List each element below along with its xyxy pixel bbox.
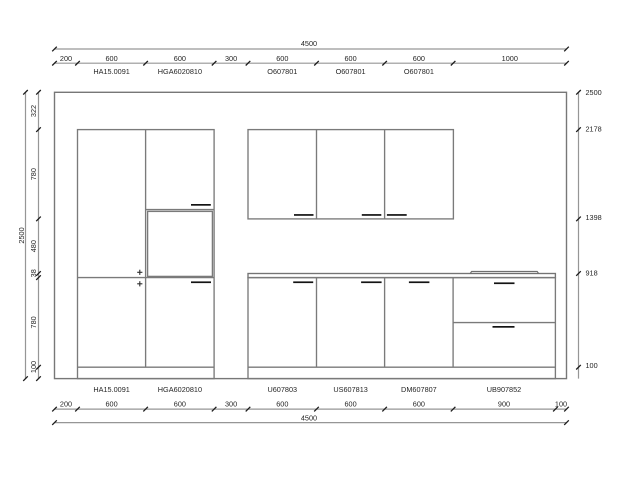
- svg-text:322: 322: [29, 105, 38, 117]
- svg-text:2500: 2500: [17, 227, 26, 243]
- svg-text:600: 600: [276, 54, 288, 63]
- svg-text:300: 300: [225, 399, 237, 408]
- svg-text:O607801: O607801: [267, 67, 297, 76]
- svg-text:300: 300: [225, 54, 237, 63]
- svg-text:DM607807: DM607807: [401, 385, 437, 394]
- svg-text:600: 600: [174, 399, 186, 408]
- svg-text:U607803: U607803: [267, 385, 297, 394]
- svg-text:900: 900: [498, 399, 510, 408]
- svg-text:HGA6020810: HGA6020810: [158, 385, 202, 394]
- svg-text:918: 918: [586, 269, 598, 278]
- svg-text:600: 600: [413, 399, 425, 408]
- svg-text:600: 600: [413, 54, 425, 63]
- svg-text:1000: 1000: [502, 54, 518, 63]
- svg-text:780: 780: [29, 316, 38, 328]
- svg-text:600: 600: [276, 399, 288, 408]
- svg-text:600: 600: [106, 54, 118, 63]
- svg-text:200: 200: [60, 399, 72, 408]
- svg-text:480: 480: [29, 240, 38, 252]
- svg-text:O607801: O607801: [404, 67, 434, 76]
- svg-text:HGA6020810: HGA6020810: [158, 67, 202, 76]
- svg-text:UB907852: UB907852: [487, 385, 522, 394]
- svg-text:600: 600: [106, 399, 118, 408]
- svg-text:4500: 4500: [301, 413, 317, 422]
- svg-text:4500: 4500: [301, 39, 317, 48]
- svg-text:780: 780: [29, 168, 38, 180]
- svg-text:100: 100: [586, 361, 598, 370]
- svg-text:600: 600: [345, 399, 357, 408]
- svg-text:200: 200: [60, 54, 72, 63]
- svg-text:US607813: US607813: [333, 385, 368, 394]
- svg-text:38: 38: [29, 269, 38, 277]
- svg-text:HA15.0091: HA15.0091: [93, 67, 130, 76]
- svg-text:600: 600: [345, 54, 357, 63]
- svg-text:HA15.0091: HA15.0091: [93, 385, 130, 394]
- svg-text:O607801: O607801: [336, 67, 366, 76]
- svg-text:2178: 2178: [586, 125, 602, 134]
- svg-text:2500: 2500: [586, 88, 602, 97]
- svg-text:1398: 1398: [586, 213, 602, 222]
- svg-text:600: 600: [174, 54, 186, 63]
- svg-text:100: 100: [29, 361, 38, 373]
